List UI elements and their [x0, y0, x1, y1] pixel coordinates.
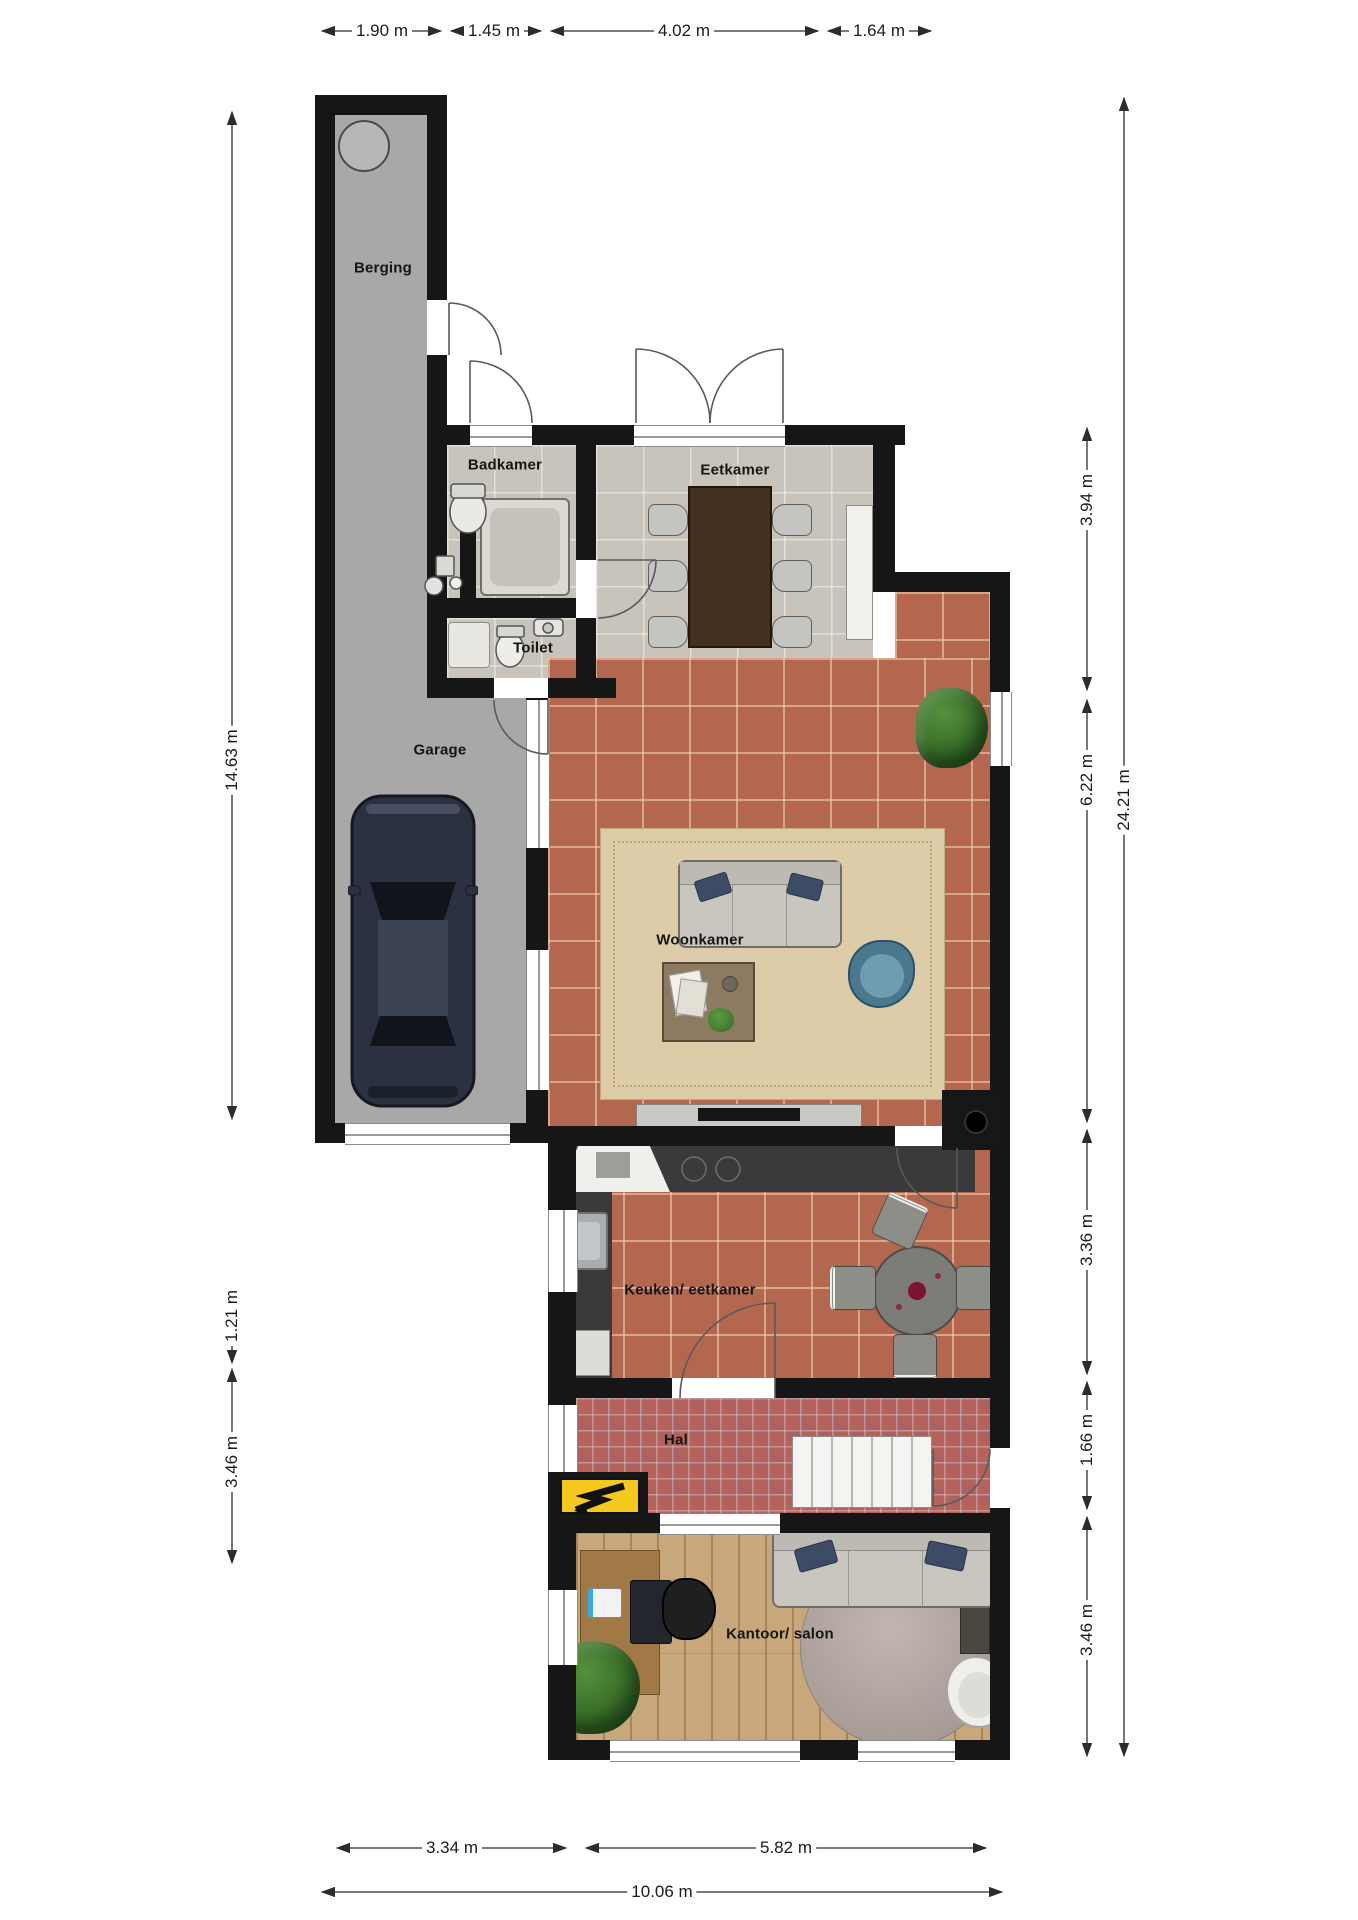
room-label-kantoor: Kantoor/ salon [726, 1626, 834, 1643]
door-threshold [660, 1513, 780, 1535]
boiler [338, 120, 390, 172]
wall [427, 95, 447, 300]
car [348, 790, 478, 1112]
window [526, 950, 550, 1090]
room-label-eetkamer: Eetkamer [700, 462, 769, 479]
dim-right-total: 24.21 m [1114, 765, 1134, 834]
room-label-badkamer: Badkamer [468, 457, 542, 474]
room-label-berging: Berging [354, 260, 412, 277]
dining-chair [772, 504, 812, 536]
shower-partition [460, 520, 476, 598]
office-chair [662, 1578, 716, 1640]
k itchen-chair [830, 1266, 876, 1310]
room-label-toilet: Toilet [513, 640, 553, 657]
sideboard [846, 505, 873, 640]
wall [427, 355, 447, 698]
dining-chair [648, 616, 688, 648]
kitchen-chair [893, 1334, 937, 1380]
dim-top-4: 1.64 m [849, 21, 909, 41]
dim-right-5: 3.46 m [1077, 1600, 1097, 1660]
dim-right-2: 6.22 m [1077, 750, 1097, 810]
floor-woonkamer-notch [895, 592, 990, 658]
lightning-bolt-icon [562, 1480, 642, 1516]
dim-bottom-2: 5.82 m [756, 1838, 816, 1858]
dining-chair [772, 616, 812, 648]
bathtub [480, 498, 570, 596]
dim-left-1: 14.63 m [222, 725, 242, 794]
dim-right-3: 3.36 m [1077, 1210, 1097, 1270]
stairs [792, 1436, 932, 1508]
tv [698, 1108, 800, 1121]
fireplace [942, 1090, 1006, 1150]
electric-panel [560, 1478, 640, 1514]
door-opening [427, 300, 447, 355]
window [345, 1123, 510, 1145]
room-label-woonkamer: Woonkamer [656, 932, 743, 949]
room-label-keuken: Keuken/ eetkamer [624, 1282, 756, 1299]
dim-left-3: 3.46 m [222, 1432, 242, 1492]
wall [873, 425, 895, 592]
dim-top-2: 1.45 m [464, 21, 524, 41]
dim-top-3: 4.02 m [654, 21, 714, 41]
dining-chair [648, 504, 688, 536]
door-opening [672, 1378, 775, 1398]
washing-machine [448, 622, 490, 668]
wall [447, 598, 596, 618]
dim-top-1: 1.90 m [352, 21, 412, 41]
wall [315, 95, 335, 1143]
dining-chair [772, 560, 812, 592]
keyboard [588, 1588, 622, 1618]
window [548, 1590, 578, 1665]
door-threshold [470, 425, 532, 447]
wall [548, 1378, 1010, 1398]
dim-right-1: 3.94 m [1077, 470, 1097, 530]
dim-left-2: 1.21 m [222, 1286, 242, 1346]
coffee-table [662, 962, 755, 1042]
dining-table [688, 486, 772, 648]
window [526, 700, 550, 848]
window [548, 1405, 578, 1472]
room-label-hal: Hal [664, 1432, 688, 1449]
window [548, 1210, 578, 1292]
dim-bottom-total: 10.06 m [627, 1882, 696, 1902]
dim-bottom-1: 3.34 m [422, 1838, 482, 1858]
floorplan-canvas: Berging Badkamer Eetkamer Toilet Garage … [0, 0, 1358, 1920]
window [610, 1740, 800, 1762]
door-opening [576, 560, 596, 618]
dining-chair [648, 560, 688, 592]
window [990, 692, 1012, 766]
door-opening [494, 678, 548, 698]
front-door-opening [990, 1448, 1010, 1508]
round-table [872, 1246, 962, 1336]
dim-right-4: 1.66 m [1077, 1410, 1097, 1470]
double-door-threshold [634, 425, 785, 447]
window [858, 1740, 955, 1762]
room-label-garage: Garage [414, 742, 467, 759]
